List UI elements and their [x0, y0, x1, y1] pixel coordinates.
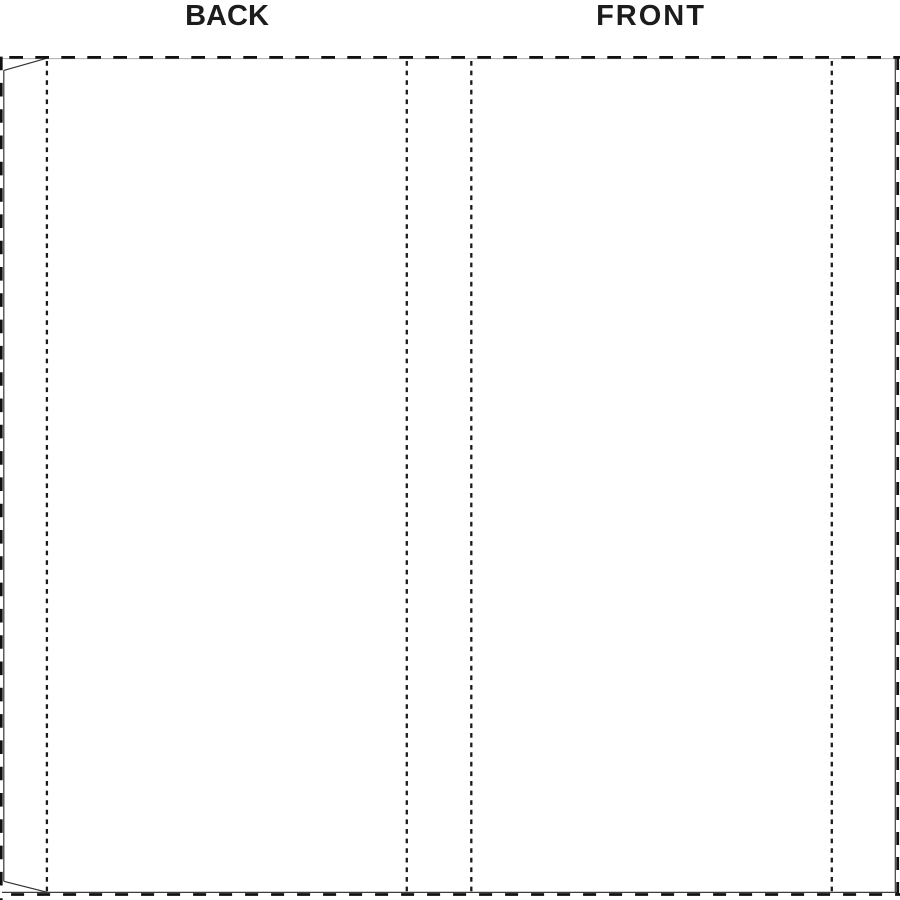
svg-text:FRONT: FRONT	[596, 0, 706, 32]
svg-text:BACK: BACK	[185, 0, 269, 32]
